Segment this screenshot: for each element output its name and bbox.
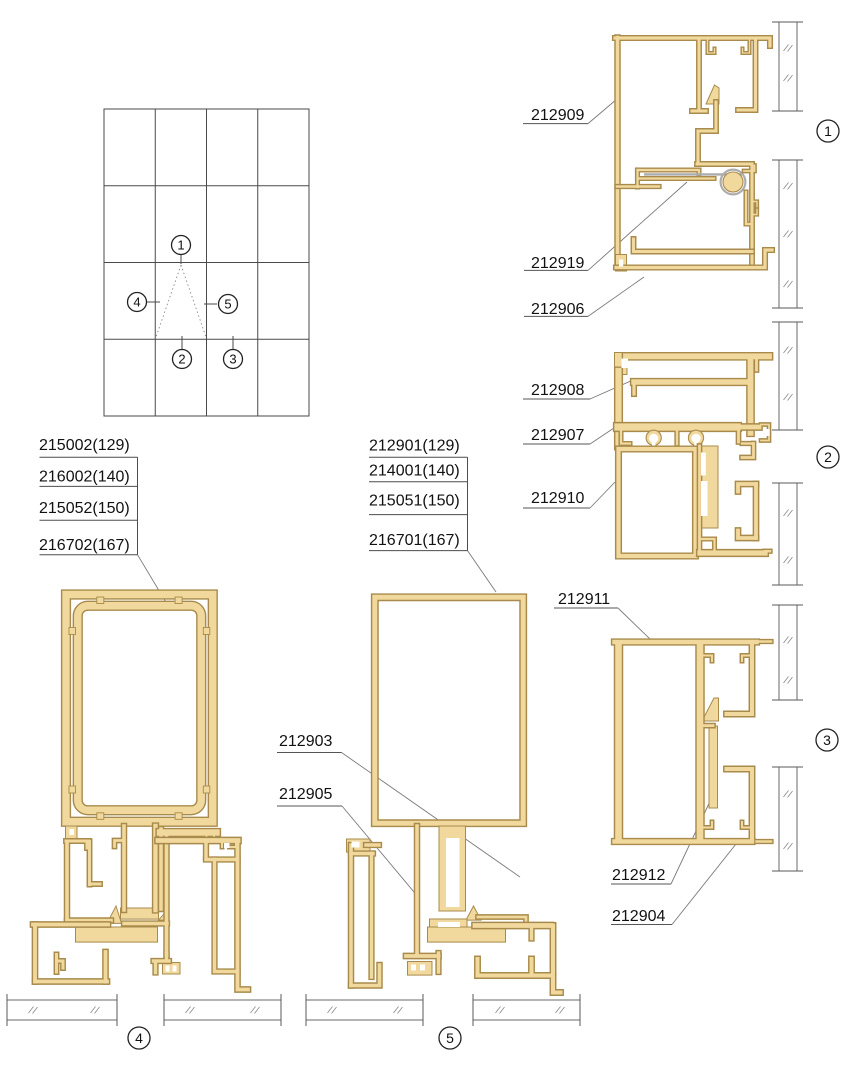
svg-text:212901(129): 212901(129) — [369, 438, 460, 455]
svg-text:212906: 212906 — [531, 301, 584, 318]
svg-text:3: 3 — [823, 732, 831, 748]
svg-text:212907: 212907 — [531, 427, 584, 444]
svg-text:3: 3 — [229, 352, 236, 367]
svg-text:212919: 212919 — [531, 255, 584, 272]
svg-text:1: 1 — [824, 123, 832, 139]
svg-text:215052(150): 215052(150) — [39, 500, 130, 517]
svg-text:2: 2 — [824, 449, 832, 465]
svg-text:1: 1 — [177, 238, 184, 253]
svg-text:212912: 212912 — [612, 867, 665, 884]
svg-text:4: 4 — [133, 295, 140, 310]
svg-text:212905: 212905 — [279, 786, 332, 803]
svg-text:212909: 212909 — [531, 107, 584, 124]
svg-text:5: 5 — [446, 1030, 454, 1046]
svg-text:212908: 212908 — [531, 382, 584, 399]
svg-text:216002(140): 216002(140) — [39, 469, 130, 486]
svg-text:214001(140): 214001(140) — [369, 462, 460, 479]
svg-text:216701(167): 216701(167) — [369, 532, 460, 549]
svg-text:4: 4 — [135, 1030, 143, 1046]
svg-text:2: 2 — [178, 352, 185, 367]
svg-text:215051(150): 215051(150) — [369, 492, 460, 509]
svg-text:212910: 212910 — [531, 490, 584, 507]
svg-text:212903: 212903 — [279, 733, 332, 750]
svg-text:212911: 212911 — [558, 591, 610, 608]
svg-text:212904: 212904 — [612, 908, 665, 925]
svg-text:5: 5 — [224, 297, 231, 312]
svg-text:216702(167): 216702(167) — [39, 537, 130, 554]
svg-text:215002(129): 215002(129) — [39, 437, 130, 454]
